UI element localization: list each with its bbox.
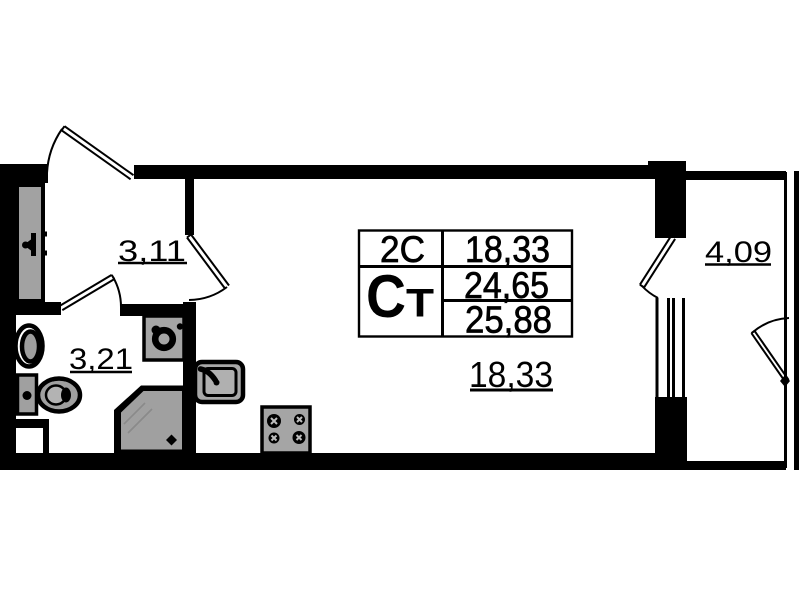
svg-text:Т: Т bbox=[406, 282, 434, 326]
svg-text:С: С bbox=[366, 263, 406, 330]
svg-text:25,88: 25,88 bbox=[465, 300, 552, 342]
svg-text:18,33: 18,33 bbox=[465, 229, 550, 270]
